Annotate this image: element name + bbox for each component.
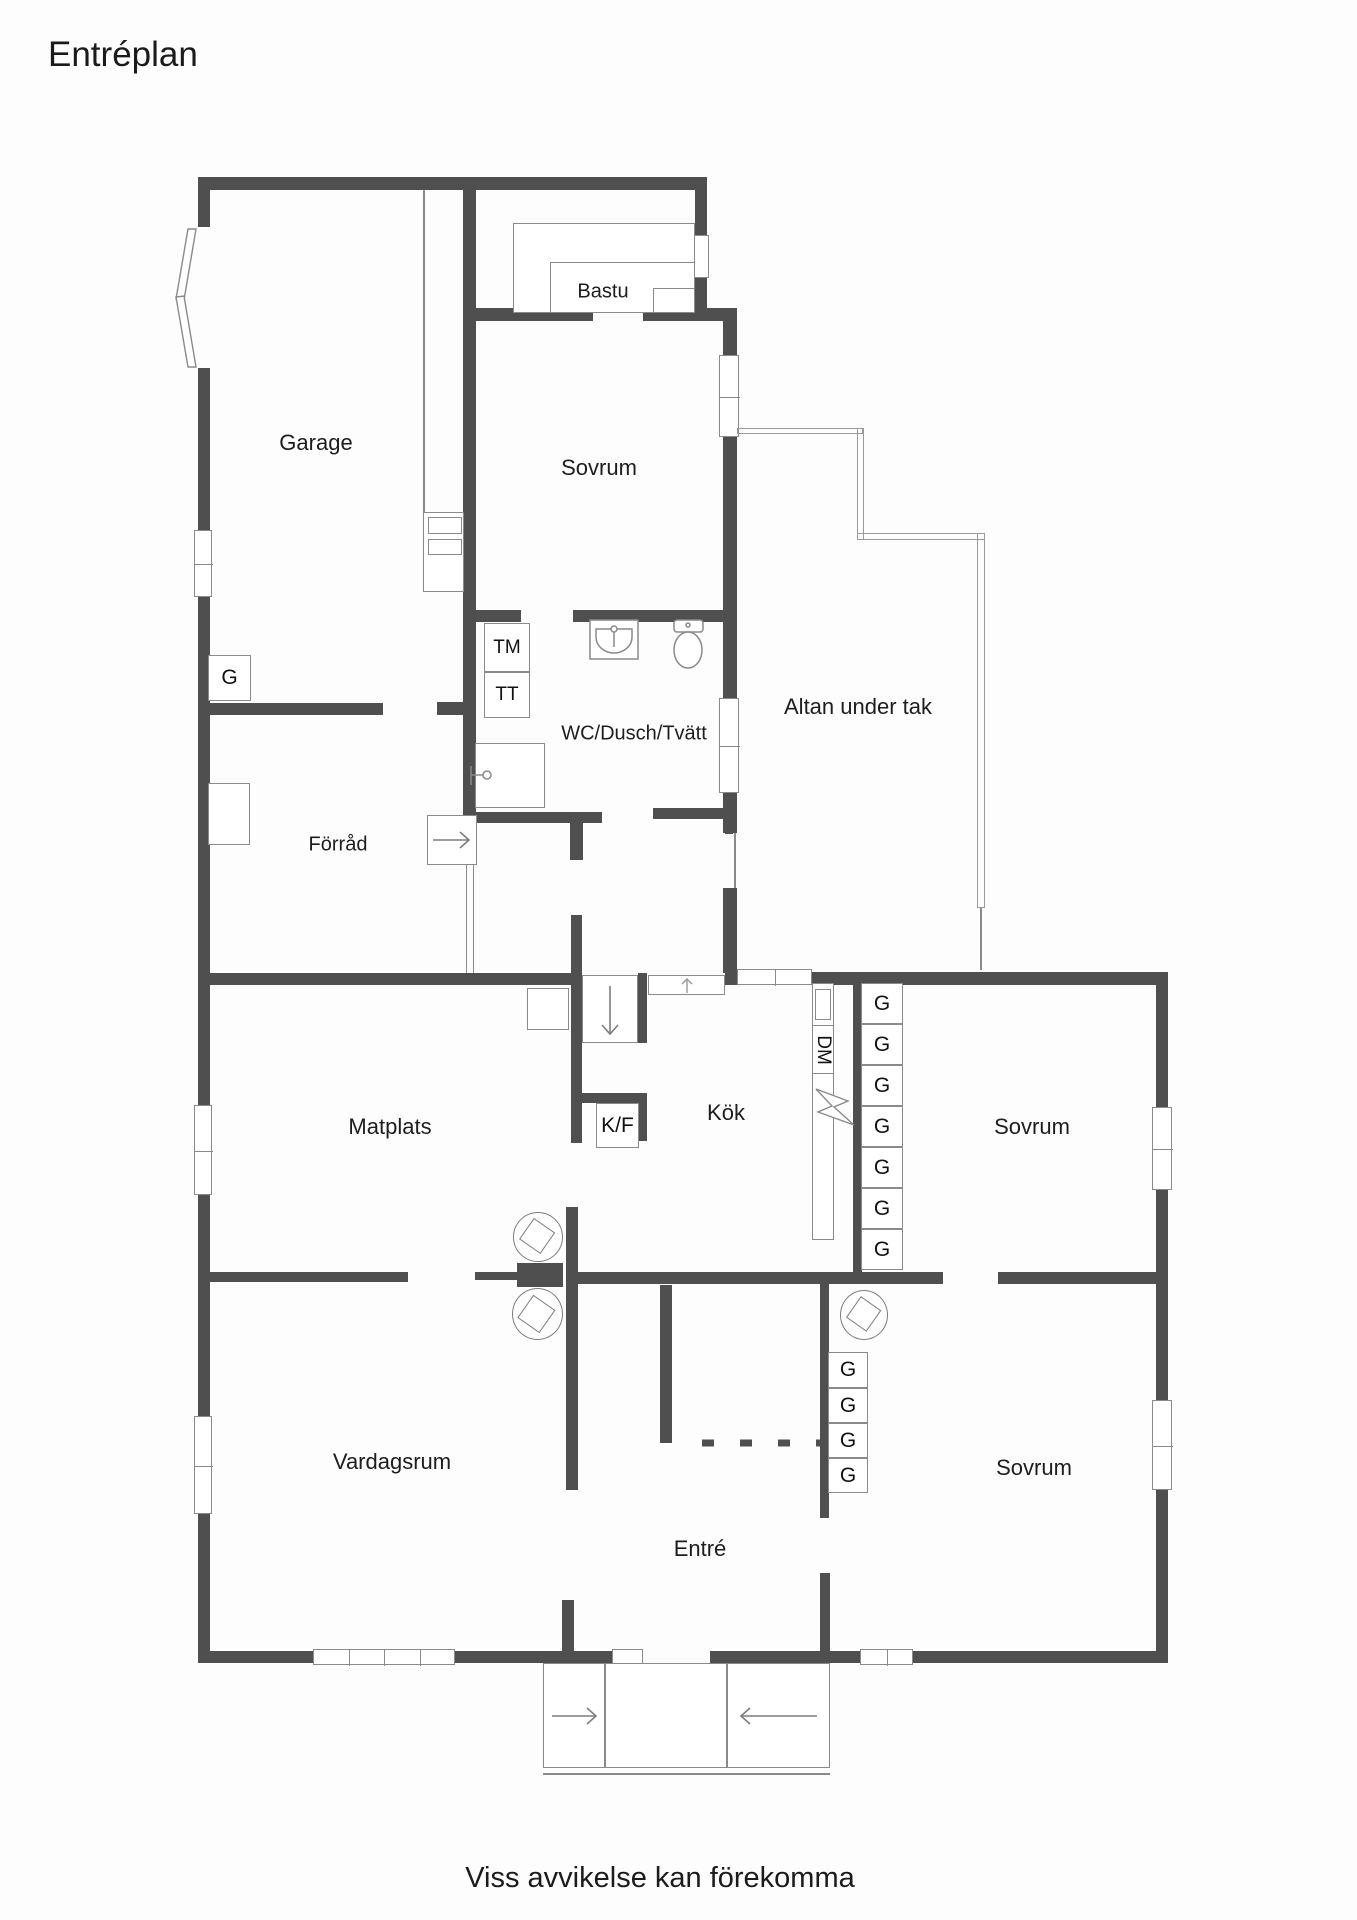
wall [475,1272,518,1280]
wardrobe-label: G [221,666,237,690]
wall [723,437,737,698]
wall [573,610,737,622]
window [1152,1400,1172,1490]
sauna-step [653,288,695,313]
fridge-freezer: K/F [596,1103,639,1148]
wall [725,973,737,985]
wardrobe-label: G [840,1464,856,1488]
wall [198,1514,210,1651]
wall [198,368,210,530]
sink-icon [590,620,638,659]
wall [660,1285,672,1443]
wall [463,812,602,823]
wall [723,888,737,973]
entry-step [648,975,725,995]
garage-door-icon [176,229,196,367]
wardrobe-box: G [208,655,251,701]
fireplace-icon [512,1288,563,1340]
wall [198,703,383,715]
window [313,1649,455,1665]
room-label-matplats: Matplats [348,1114,431,1140]
window [737,969,812,985]
wardrobe-box: G [861,1188,903,1229]
wall [653,808,733,819]
wall [473,610,521,622]
room-label-sovrum-top: Sovrum [561,455,637,481]
chimney-wall [517,1263,563,1287]
window [194,1105,212,1195]
toilet-icon [674,620,703,668]
wall [578,1272,943,1284]
wall [198,177,707,190]
room-label-forrad: Förråd [309,834,368,857]
wardrobe-box: G [861,1024,903,1065]
wardrobe-label: G [874,1074,890,1098]
wardrobe-box: G [828,1423,868,1458]
porch [605,1663,727,1768]
altan-edge [857,428,864,540]
window [719,698,739,793]
wardrobe-label: G [840,1358,856,1382]
wardrobe-label: G [840,1394,856,1418]
porch-step [543,1663,605,1768]
porch-edge-line [543,1773,830,1775]
wall [820,1573,830,1653]
wall [1156,1190,1168,1400]
tumble-dryer: TT [484,672,530,718]
wall [198,985,210,1105]
wall [723,313,737,355]
fridge-freezer-label: K/F [601,1114,634,1138]
wall-gap-line [734,833,736,888]
wall [566,1207,578,1490]
wall [437,702,475,715]
wall [198,973,571,985]
fireplace-icon [513,1212,563,1262]
window [693,235,709,278]
wardrobe-label: G [874,1033,890,1057]
wardrobe-box: G [861,1147,903,1188]
wardrobe-label: G [874,1238,890,1262]
wardrobe-box: G [828,1352,868,1388]
wardrobe-box: G [861,983,903,1024]
wall [210,1272,408,1282]
wall [580,1093,647,1103]
dishwasher-label: DM [812,1035,834,1065]
window [194,530,212,597]
wall [638,1093,647,1141]
fireplace-icon [840,1290,888,1340]
stair-down [582,975,638,1043]
porch-step [727,1663,830,1768]
window [719,355,739,437]
wardrobe-box: G [861,1106,903,1147]
wardrobe-label: G [874,1115,890,1139]
wardrobe-box: G [828,1458,868,1493]
room-label-bastu: Bastu [577,281,628,304]
room-label-sovrum-right: Sovrum [994,1114,1070,1140]
kitchen-counter [812,983,834,1240]
dishwasher: DM [812,1025,834,1074]
wardrobe-label: G [874,1156,890,1180]
wall [198,1195,210,1416]
storage-shelf [208,783,250,845]
floorplan-canvas: Entréplan Viss avvikelse kan förekomma [0,0,1357,1920]
wall [455,1651,612,1663]
washing-machine-label: TM [493,637,520,659]
workbench-shelf [428,539,462,555]
wall [998,1272,1168,1284]
room-label-sovrum-lower: Sovrum [996,1455,1072,1481]
wall [1156,982,1168,1107]
room-label-entre: Entré [674,1536,727,1562]
workbench-shelf [428,517,462,534]
wall [198,190,210,227]
room-label-garage: Garage [279,430,352,456]
wall [1156,1490,1168,1663]
kitchen-sink [815,989,831,1020]
tumble-dryer-label: TT [495,684,518,706]
wardrobe-label: G [874,992,890,1016]
window [860,1649,913,1665]
wall [570,823,583,860]
altan-edge [857,533,985,540]
washing-machine: TM [484,623,530,672]
room-label-vardagsrum: Vardagsrum [333,1449,451,1475]
stair-landing [427,815,477,865]
wardrobe-box: G [828,1388,868,1423]
window [1152,1107,1172,1190]
wall [562,1600,574,1651]
altan-edge [977,533,985,908]
workbench-line [423,190,425,512]
wall [710,1651,860,1663]
altan-edge [980,908,982,970]
wall [723,793,737,833]
wall [463,190,476,812]
altan-edge [737,428,863,434]
stair-rail [466,865,474,973]
wall [913,1651,1168,1663]
wardrobe-box: G [861,1229,903,1270]
wall [695,190,707,235]
wall [198,1651,313,1663]
page-title: Entréplan [48,35,198,75]
room-label-wc: WC/Dusch/Tvätt [561,723,707,746]
wall [571,915,582,1143]
shower [475,743,545,808]
window [194,1416,212,1514]
wardrobe-label: G [840,1429,856,1453]
room-label-kok: Kök [707,1100,745,1126]
wardrobe-box: G [861,1065,903,1106]
hatch-box [527,988,569,1030]
wall [638,973,647,1043]
room-label-altan: Altan under tak [784,694,932,720]
disclaimer-text: Viss avvikelse kan förekomma [410,1862,910,1895]
wardrobe-label: G [874,1197,890,1221]
